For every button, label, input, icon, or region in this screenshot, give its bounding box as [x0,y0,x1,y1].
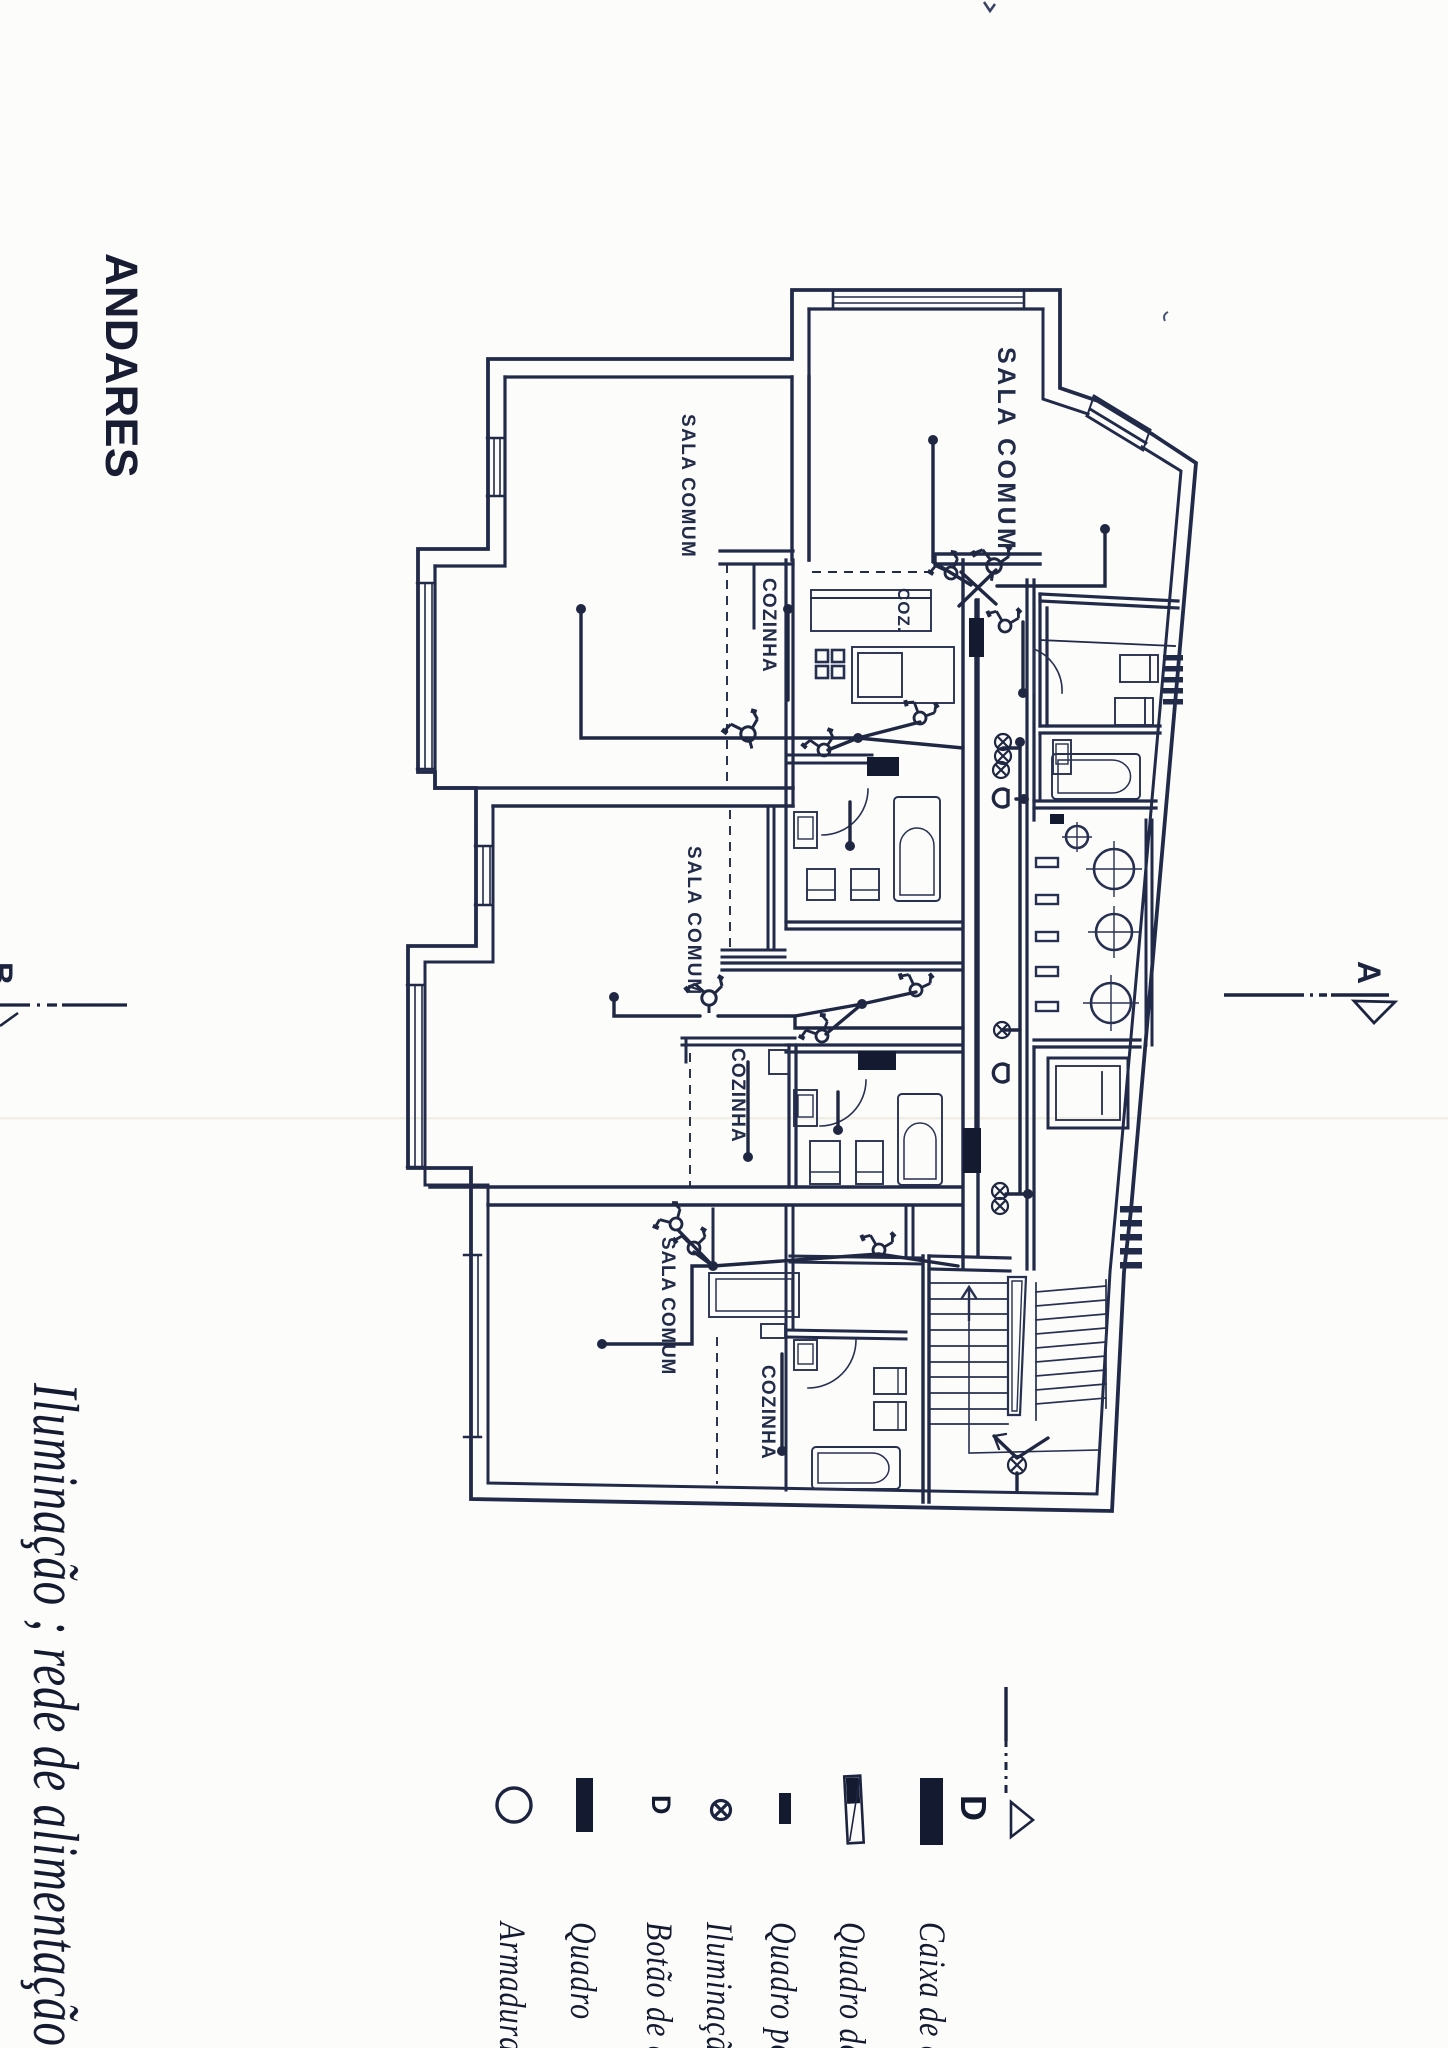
svg-text:Iluminação: Iluminação [698,1921,739,2048]
svg-text:SALA COMUM: SALA COMUM [992,347,1020,552]
svg-text:D: D [953,1795,994,1821]
svg-text:COZ.: COZ. [894,588,913,633]
svg-text:Quadro de colunas: Quadro de colunas [831,1922,872,2048]
svg-text:A: A [1351,961,1387,984]
svg-text:Botão de campainha: Botão de campainha [638,1922,679,2048]
svg-text:Iluminação ; rede de alimentaç: Iluminação ; rede de alimentação [19,1382,90,2047]
svg-text:Armadura estanque: Armadura estanque [491,1920,532,2048]
svg-text:SALA COMUM: SALA COMUM [683,846,704,996]
svg-text:ANDARES: ANDARES [96,253,147,478]
svg-text:COZINHA: COZINHA [757,1365,778,1460]
svg-text:COZINHA: COZINHA [727,1048,748,1143]
svg-text:B: B [0,962,19,985]
svg-text:SALA COMUM: SALA COMUM [677,414,698,558]
svg-text:Caixa de coluna: Caixa de coluna [911,1922,952,2048]
svg-text:D: D [646,1795,676,1815]
svg-text:COZINHA: COZINHA [758,578,779,673]
svg-text:Quadro parcial: Quadro parcial [762,1922,803,2048]
svg-text:Quadro: Quadro [562,1922,603,2020]
svg-text:SALA COMUM: SALA COMUM [657,1237,678,1375]
